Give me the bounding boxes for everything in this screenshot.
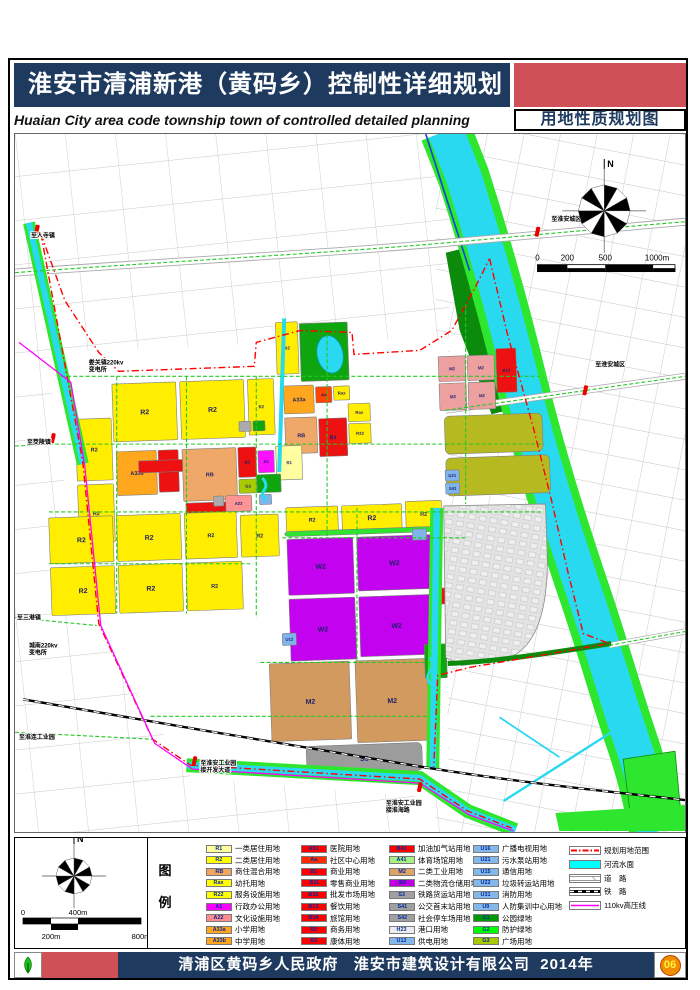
legend-swatch: U9 [473, 903, 499, 911]
legend-swatch: B2 [301, 926, 327, 934]
legend-code: Aa [311, 857, 318, 862]
legend-label: 人防集训中心用地 [502, 901, 562, 912]
parcel-label: R2 [77, 537, 86, 544]
legend-label: 零售商业用地 [330, 878, 375, 889]
edge-label: 变电所 [89, 365, 107, 373]
legend-line-label: 道 路 [604, 873, 627, 884]
parcel-label: R2 [140, 409, 149, 416]
logo-icon [20, 955, 36, 975]
page-title-english: Huaian City area code township town of c… [14, 109, 510, 131]
edge-label: 至淮连工业园 [19, 733, 55, 741]
legend-label: 小学用地 [235, 924, 265, 935]
parcel-label: Rax [355, 410, 364, 415]
legend-line-item-road: 道 路 [569, 874, 627, 883]
legend-swatch: U15 [473, 868, 499, 876]
legend-code: R2 [216, 857, 223, 862]
legend-swatch: B13 [301, 903, 327, 911]
parcel-label: B2 [244, 460, 250, 465]
legend-swatch: A51 [301, 845, 327, 853]
legend-swatch: R22 [206, 891, 232, 899]
legend-code: U31 [481, 892, 491, 897]
parcel-label: R2 [145, 535, 154, 542]
parcel [138, 459, 182, 472]
legend-code: B41 [397, 846, 407, 851]
parcel-label: W2 [318, 626, 329, 633]
svg-text:800m: 800m [132, 932, 147, 941]
legend-item-S3: S3铁路货运站用地 [389, 890, 471, 899]
legend-swatch: S3 [389, 891, 415, 899]
parcel-label: R2 [256, 533, 263, 539]
legend-label: 一类居住用地 [235, 843, 280, 854]
legend-label: 广播电视用地 [502, 843, 547, 854]
legend-label: 文化设施用地 [235, 913, 280, 924]
legend-code: U21 [481, 857, 491, 862]
legend-code: H23 [397, 927, 407, 932]
legend-code: G3 [482, 939, 489, 944]
parcel-label: M2 [479, 393, 486, 398]
legend-swatch: B11 [301, 879, 327, 887]
legend-item-B3: B3康体用地 [301, 937, 360, 946]
parcel-label: U12 [285, 637, 294, 642]
footer-year: 2014年 [540, 956, 593, 973]
legend-item-R2: R2二类居住用地 [206, 856, 280, 865]
legend-code: B3 [311, 939, 318, 944]
parcel-label: G3 [245, 483, 251, 488]
legend-compass-scale: N0400m200m800m [15, 838, 147, 948]
legend-item-A51: A51医院用地 [301, 844, 360, 853]
legend-item-U31: U31消防用地 [473, 890, 532, 899]
parcel-label: A33a [292, 397, 306, 403]
legend-line-label: 铁 路 [604, 886, 627, 897]
legend-line-item-water: 河流水面 [569, 860, 634, 869]
parcel-label: U21 [448, 473, 457, 478]
legend-swatch: U22 [473, 879, 499, 887]
legend-code: R1 [216, 846, 223, 851]
legend-item-R22: R22服务设施用地 [206, 890, 280, 899]
legend-line-swatch-water [569, 860, 601, 869]
legend-item-M2: M2二类工业用地 [389, 867, 463, 876]
legend-code: Rax [214, 881, 224, 886]
footer-designer: 淮安市建筑设计有限公司 [354, 956, 530, 973]
sheet-frame: 淮安市清浦新港（黄码乡）控制性详细规划 Huaian City area cod… [8, 58, 688, 980]
legend-item-Rax: Rax幼托用地 [206, 879, 265, 888]
legend-item-S41: S41公交首末站用地 [389, 902, 471, 911]
legend-item-S42: S42社会停车场用地 [389, 914, 471, 923]
legend-item-U12: U12供电用地 [389, 937, 448, 946]
legend-label: 广场用地 [502, 936, 532, 947]
legend-code: B1 [311, 869, 318, 874]
legend-line-item-dashdot: 规划用地范围 [569, 846, 649, 855]
map-area: R2R2R2R2G1A33aAaRaxRBB1RaxR22R2R2A33aA51… [14, 133, 686, 833]
legend-label: 社会停车场用地 [418, 913, 471, 924]
legend-label: 二类工业用地 [418, 866, 463, 877]
legend-code: A1 [216, 904, 223, 909]
page-title: 淮安市清浦新港（黄码乡）控制性详细规划 [14, 63, 510, 107]
legend-line-label: 规划用地范围 [604, 845, 649, 856]
edge-label: 娄关镇220kv [89, 358, 124, 366]
legend-title-char-1: 图 [155, 860, 175, 879]
legend-item-B1: B1商业用地 [301, 867, 360, 876]
edge-label: 至茭陵镇 [27, 438, 51, 446]
legend-item-U9: U9人防集训中心用地 [473, 902, 562, 911]
map-type-label: 用地性质规划图 [514, 109, 686, 131]
parcel-label: S41 [449, 486, 457, 491]
legend-swatch: Aa [301, 856, 327, 864]
legend-label: 餐饮用地 [330, 901, 360, 912]
page-number-box: 06 [654, 952, 686, 978]
edge-label: 至人寺镇 [31, 232, 55, 240]
legend-label: 社区中心用地 [330, 855, 375, 866]
legend-line-swatch-rail [569, 887, 601, 896]
parcel [214, 496, 224, 506]
legend-swatch: B3 [301, 937, 327, 945]
legend-code: S3 [399, 892, 406, 897]
legend-item-G2: G2防护绿地 [473, 925, 532, 934]
legend-swatch: B1 [301, 868, 327, 876]
parcel-label: R2 [367, 515, 376, 522]
legend-swatch: R1 [206, 845, 232, 853]
legend-panel: N0400m200m800m 图 例 R1一类居住用地R2二类居住用地RB商住混… [14, 837, 686, 949]
legend-swatch: RB [206, 868, 232, 876]
legend-code: B11 [309, 881, 319, 886]
edge-label: 接淮海路 [386, 806, 411, 814]
parcel-label: M2 [450, 394, 457, 399]
legend-code: W2 [398, 881, 406, 886]
parcel [444, 413, 543, 454]
legend-item-A33b: A33b中学用地 [206, 937, 265, 946]
legend-divider [147, 838, 148, 948]
legend-item-B41: B41加油加气站用地 [389, 844, 471, 853]
legend-swatch: H23 [389, 926, 415, 934]
legend-line-item-rail: 铁 路 [569, 887, 627, 896]
legend-label: 商业用地 [330, 866, 360, 877]
legend-item-RB: RB商住混合用地 [206, 867, 280, 876]
legend-item-G3: G3广场用地 [473, 937, 532, 946]
legend-label: 港口用地 [418, 924, 448, 935]
parcel-label: B12 [502, 368, 511, 373]
parcel-label: B1 [330, 435, 337, 441]
legend-swatch: B12 [301, 891, 327, 899]
legend-item-A1: A1行政办公用地 [206, 902, 280, 911]
legend-swatch: M2 [389, 868, 415, 876]
legend-code: A51 [309, 846, 319, 851]
legend-code: S42 [397, 915, 407, 920]
legend-swatch: U21 [473, 856, 499, 864]
legend-swatch: R2 [206, 856, 232, 864]
parcel-label: M2 [449, 366, 456, 371]
legend-code: B12 [309, 892, 319, 897]
legend-item-B13: B13餐饮用地 [301, 902, 360, 911]
legend-label: 通信用地 [502, 866, 532, 877]
legend-label: 批发市场用地 [330, 889, 375, 900]
legend-item-Aa: Aa社区中心用地 [301, 856, 375, 865]
parcel-label: M2 [306, 699, 316, 706]
north-label: N [607, 159, 613, 169]
legend-label: 防护绿地 [502, 924, 532, 935]
design-institute-logo [14, 952, 42, 978]
parcel-label: R2 [91, 447, 98, 453]
legend-code: G1 [482, 915, 489, 920]
edge-label: 变电所 [29, 648, 47, 656]
legend-code: B2 [311, 927, 318, 932]
legend-label: 公交首末站用地 [418, 901, 471, 912]
legend-label: 服务设施用地 [235, 889, 280, 900]
edge-label: 至三港镇 [17, 614, 41, 622]
legend-swatch: S41 [389, 903, 415, 911]
legend-item-A41: A41体育场馆用地 [389, 856, 463, 865]
parcel [412, 529, 426, 540]
legend-code: RB [215, 869, 223, 874]
parcel-label: R22 [356, 431, 365, 436]
scalebar-label: 1000m [645, 254, 670, 263]
parcel-label: W2 [391, 623, 402, 630]
legend-label: 二类居住用地 [235, 855, 280, 866]
parcel-label: R2 [208, 407, 217, 414]
legend-code: S41 [397, 904, 407, 909]
legend-item-A22: A22文化设施用地 [206, 914, 280, 923]
legend-item-R1: R1一类居住用地 [206, 844, 280, 853]
legend-line-label: 110kv高压线 [604, 900, 646, 911]
parcel [446, 455, 551, 496]
legend-swatch: U12 [389, 937, 415, 945]
parcel [257, 474, 282, 493]
parcel-label: Aa [321, 392, 327, 397]
plan-sheet: 淮安市清浦新港（黄码乡）控制性详细规划 Huaian City area cod… [0, 0, 700, 990]
legend-label: 幼托用地 [235, 878, 265, 889]
legend-label: 消防用地 [502, 889, 532, 900]
legend-swatch: G1 [473, 914, 499, 922]
legend-code: B14 [309, 915, 319, 920]
legend-title-char-2: 例 [155, 892, 175, 911]
legend-label: 旅馆用地 [330, 913, 360, 924]
legend-line-swatch-dashdot [569, 846, 601, 855]
legend-label: 行政办公用地 [235, 901, 280, 912]
parcel-label: RB [206, 472, 214, 478]
legend-code: A33a [213, 927, 226, 932]
parcel-label: W2 [315, 564, 326, 571]
footer-government: 清浦区黄码乡人民政府 [178, 956, 338, 973]
edge-label: 至淮安城区 [595, 360, 625, 368]
edge-label: 至淮安工业园 [200, 759, 236, 767]
legend-code: A41 [397, 857, 407, 862]
footer-credit: 清浦区黄码乡人民政府 淮安市建筑设计有限公司 2014年 [118, 952, 654, 978]
legend-code: G2 [482, 927, 489, 932]
legend-label: 医院用地 [330, 843, 360, 854]
parcel-label: R2 [211, 584, 218, 590]
legend-swatch: B14 [301, 914, 327, 922]
footer: 清浦区黄码乡人民政府 淮安市建筑设计有限公司 2014年 06 [14, 952, 686, 978]
edge-label: 接开发大道 [200, 766, 230, 774]
legend-swatch: A33b [206, 937, 232, 945]
edge-label: 至淮安城区 [551, 215, 581, 223]
legend-item-B12: B12批发市场用地 [301, 890, 375, 899]
header-red-block [514, 63, 686, 107]
parcel-label: R2 [146, 586, 155, 593]
parcel-label: R2 [284, 345, 290, 350]
legend-swatch: A33a [206, 926, 232, 934]
svg-text:400m: 400m [69, 908, 88, 917]
north-label: N [77, 838, 84, 844]
legend-item-U22: U22垃圾转运站用地 [473, 879, 555, 888]
legend-label: 体育场馆用地 [418, 855, 463, 866]
footer-red-block [42, 952, 118, 978]
legend-label: 中学用地 [235, 936, 265, 947]
legend-line-swatch-road [569, 874, 601, 883]
legend-swatch: A22 [206, 914, 232, 922]
svg-text:0: 0 [21, 908, 25, 917]
legend-item-B2: B2商务用地 [301, 925, 360, 934]
scalebar-label: 0 [535, 254, 540, 263]
parcel [253, 421, 265, 431]
parcel-label: R2 [207, 533, 214, 539]
legend-swatch: U31 [473, 891, 499, 899]
parcel-label: A22 [235, 501, 244, 506]
parcel [239, 421, 251, 431]
legend-line-item-hv: 110kv高压线 [569, 901, 646, 910]
scalebar-label: 200 [561, 254, 575, 263]
legend-item-U16: U16广播电视用地 [473, 844, 547, 853]
legend-swatch: Rax [206, 879, 232, 887]
edge-label: 至淮安工业园 [386, 799, 422, 807]
legend-item-H23: H23港口用地 [389, 925, 448, 934]
parcel-label: M2 [478, 365, 485, 370]
legend-label: 供电用地 [418, 936, 448, 947]
legend-swatch: S42 [389, 914, 415, 922]
land-use-map: R2R2R2R2G1A33aAaRaxRBB1RaxR22R2R2A33aA51… [15, 134, 685, 832]
parcel-label: R2 [79, 588, 88, 595]
legend-label: 污水泵站用地 [502, 855, 547, 866]
legend-swatch: A41 [389, 856, 415, 864]
legend-item-U15: U15通信用地 [473, 867, 532, 876]
parcel-label: W2 [389, 560, 400, 567]
scalebar-label: 500 [599, 254, 613, 263]
edge-label: 城南220kv [29, 642, 58, 650]
legend-line-label: 河流水面 [604, 859, 634, 870]
parcel-label: Rax [338, 390, 347, 395]
legend-swatch: G3 [473, 937, 499, 945]
legend-item-B11: B11零售商业用地 [301, 879, 375, 888]
legend-label: 二类物流仓储用地 [418, 878, 478, 889]
legend-line-swatch-hv [569, 901, 601, 910]
legend-item-A33a: A33a小学用地 [206, 925, 265, 934]
legend-swatch: G2 [473, 926, 499, 934]
legend-item-G1: G1公园绿地 [473, 914, 532, 923]
legend-label: 公园绿地 [502, 913, 532, 924]
legend-label: 加油加气站用地 [418, 843, 471, 854]
legend-label: 康体用地 [330, 936, 360, 947]
legend-code: U9 [483, 904, 490, 909]
parcel-label: A1 [263, 459, 269, 464]
parcel-label: R2 [309, 518, 316, 524]
parcel-label: R2 [258, 404, 264, 409]
legend-label: 垃圾转运站用地 [502, 878, 555, 889]
legend-item-U21: U21污水泵站用地 [473, 856, 547, 865]
parcel-label: R1 [286, 460, 292, 465]
legend-item-W2: W2二类物流仓储用地 [389, 879, 478, 888]
legend-code: M2 [398, 869, 406, 874]
legend-code: B13 [309, 904, 319, 909]
legend-code: U12 [397, 939, 407, 944]
legend-swatch: W2 [389, 879, 415, 887]
legend-swatch: U16 [473, 845, 499, 853]
legend-code: A33b [212, 939, 225, 944]
page-number: 06 [660, 955, 681, 976]
parcel-label: M2 [387, 698, 397, 705]
legend-label: 商住混合用地 [235, 866, 280, 877]
legend-code: A22 [214, 915, 224, 920]
parcel-label: R2 [420, 512, 427, 518]
legend-swatch: B41 [389, 845, 415, 853]
parcel-label: RB [297, 433, 305, 439]
legend-code: U16 [481, 846, 491, 851]
legend-item-B14: B14旅馆用地 [301, 914, 360, 923]
legend-code: U15 [481, 869, 491, 874]
legend-swatch: A1 [206, 903, 232, 911]
svg-text:200m: 200m [42, 932, 61, 941]
legend-code: R22 [214, 892, 224, 897]
legend-label: 商务用地 [330, 924, 360, 935]
legend-label: 铁路货运站用地 [418, 889, 471, 900]
legend-code: U22 [481, 881, 491, 886]
